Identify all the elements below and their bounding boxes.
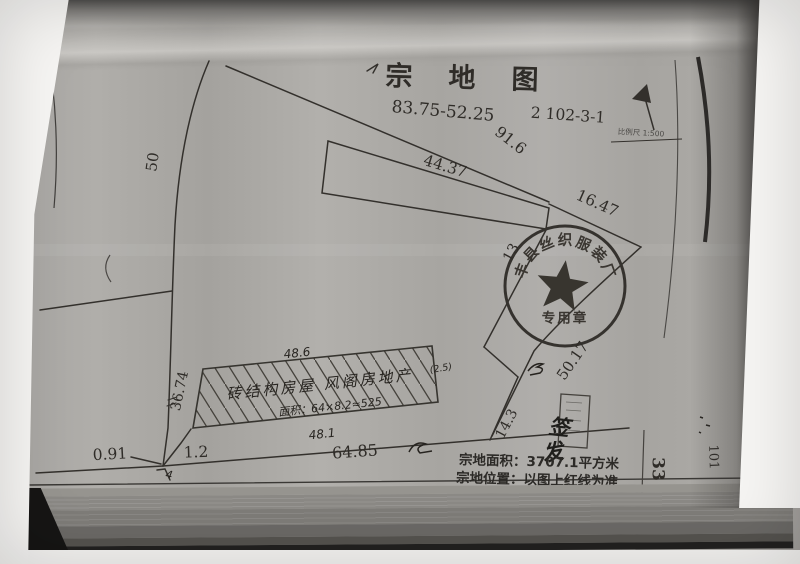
dim-south-boundary: 64.85 — [332, 442, 379, 461]
bottom-white-margin — [0, 550, 800, 564]
stamp-bottom-text: 专用章 — [542, 312, 589, 326]
sheet-title: 宗地图 — [385, 63, 575, 95]
dim-south-cap: 1.2 — [183, 445, 208, 461]
parcel-boundary-lines — [30, 61, 755, 485]
building-bottom-dim: 48.1 — [308, 427, 336, 442]
page-stack-edges — [30, 483, 793, 554]
stamp-arc-char-4: 织 — [558, 234, 573, 249]
dim-south-offset: 0.91 — [92, 446, 127, 463]
building-top-dim: 48.6 — [283, 346, 311, 361]
scribble-char-1: 签 — [547, 416, 570, 439]
page-number: 33 — [649, 457, 666, 481]
dim-west-boundary: 50 — [144, 152, 162, 173]
scanned-parcel-map-sheet: 宗地图 83.75-52.25 2 102-3-1 比例尺 1:500 91.6… — [0, 0, 800, 564]
